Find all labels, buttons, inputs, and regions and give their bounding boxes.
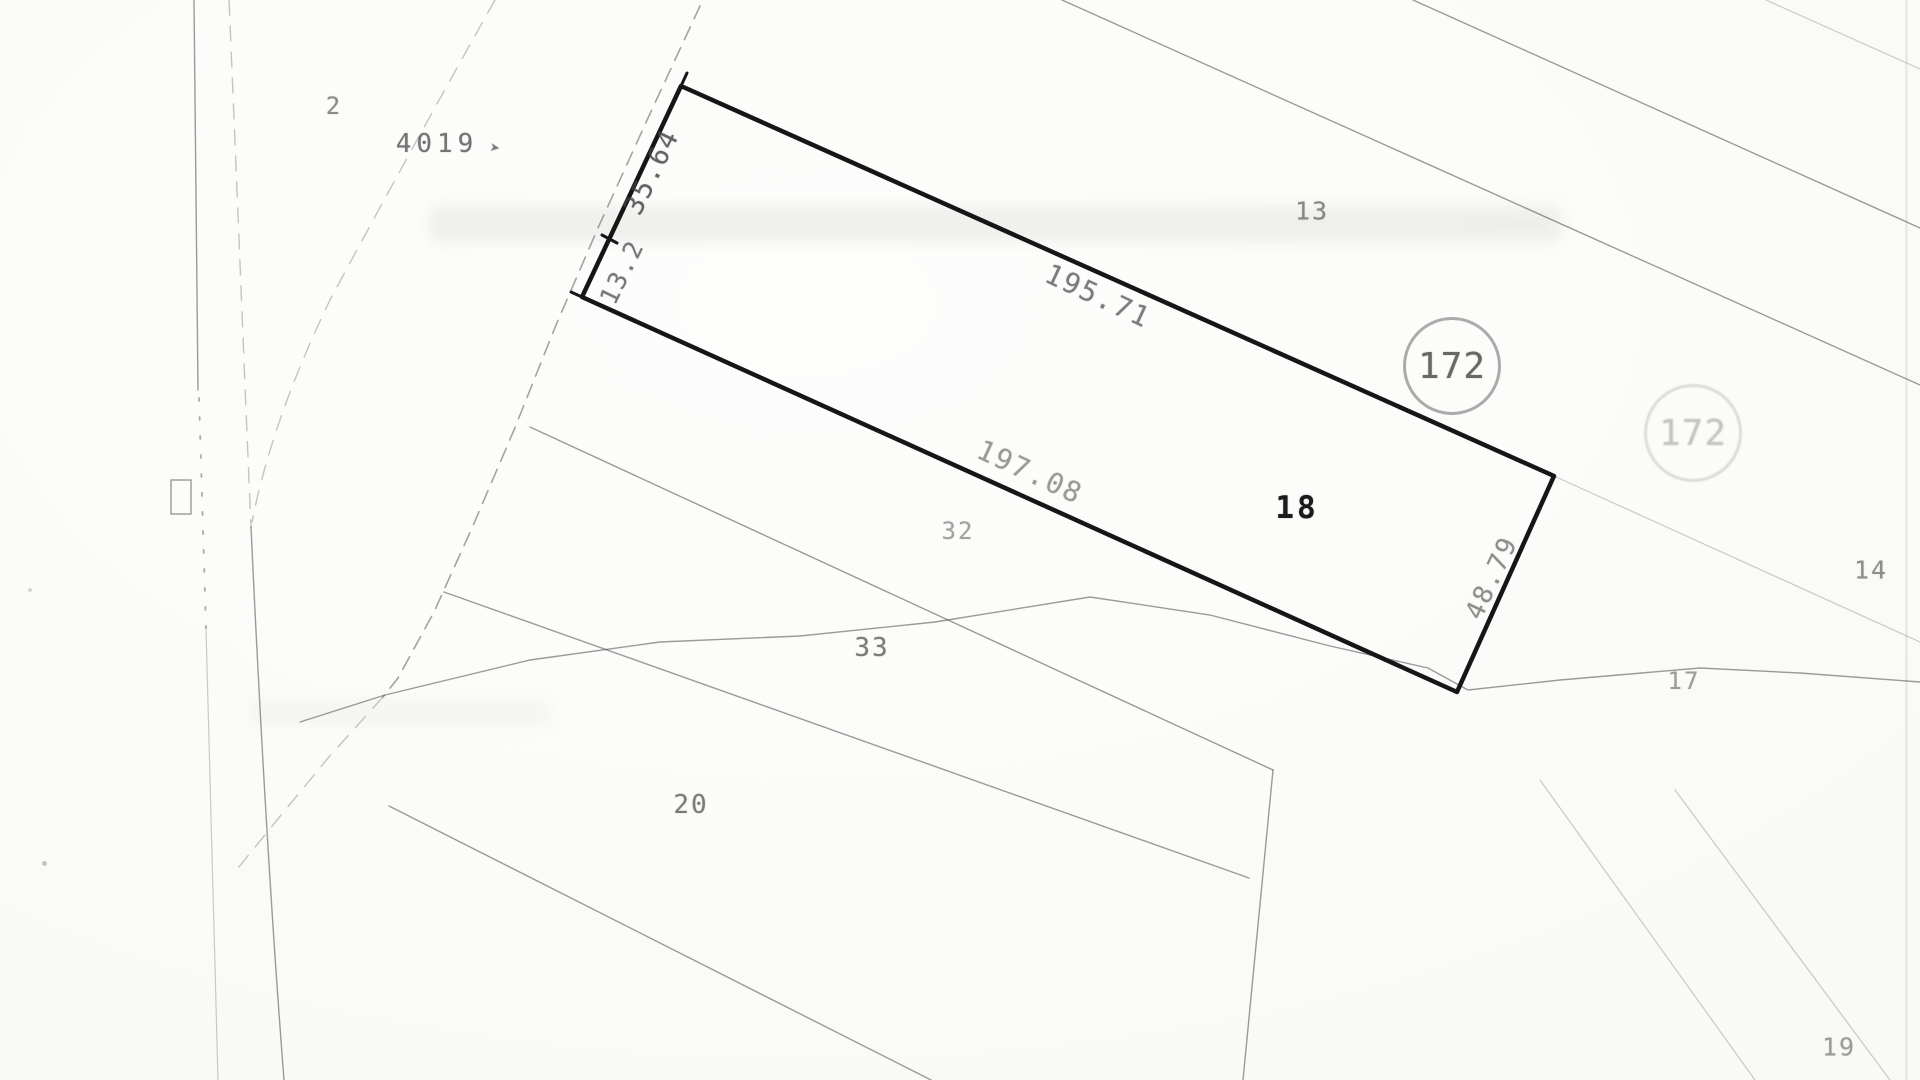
reference-circle-172-faint: 172 — [1644, 384, 1742, 482]
road-4019-west-edge — [252, 0, 495, 522]
strip-line-2 — [444, 592, 1249, 878]
parcel-label-13: 13 — [1295, 197, 1329, 226]
small-structure-box — [171, 480, 191, 514]
parcel-label-14: 14 — [1854, 556, 1888, 585]
road-4019-continuation — [238, 697, 383, 868]
stream-line — [300, 597, 1920, 722]
parcel-label-20: 20 — [673, 790, 708, 820]
field-strips-south — [389, 427, 1273, 1080]
parcel-label-32: 32 — [942, 517, 975, 545]
corner-overshoot-bottom — [571, 292, 582, 297]
reference-number-172-faint: 172 — [1659, 413, 1727, 454]
road-4019-east-edge — [383, 6, 700, 697]
left-road-boundaries — [171, 0, 284, 1080]
road-label-4019: 4019 — [396, 129, 479, 159]
parcel-label-18: 18 — [1275, 490, 1318, 526]
strip-line-ne-2 — [1413, 0, 1920, 228]
strip-line-ne-1 — [1062, 0, 1920, 385]
parcel-label-33: 33 — [854, 633, 889, 663]
strip-line-3 — [389, 806, 931, 1080]
strip-line-se-2 — [1675, 790, 1890, 1080]
road-edge-dashed-upper — [229, 0, 251, 527]
parcel-label-17: 17 — [1668, 667, 1701, 695]
left-boundary-lower — [206, 628, 218, 1080]
strip-line-se-1 — [1540, 780, 1755, 1080]
strip-line-1 — [530, 427, 1273, 770]
cadastral-map-canvas: 35.64 13.2 195.71 197.08 48.79 2 4019 ➤ … — [0, 0, 1920, 1080]
strip-end-boundary — [1243, 770, 1273, 1080]
reference-circle-172-primary: 172 — [1403, 317, 1501, 415]
left-boundary-upper — [194, 0, 198, 390]
parcel-label-2: 2 — [326, 92, 342, 120]
strip-line-ne-3 — [1766, 0, 1920, 69]
parcel-label-19: 19 — [1822, 1033, 1856, 1062]
reference-number-172: 172 — [1418, 346, 1486, 387]
corner-overshoot-top — [681, 73, 687, 86]
left-boundary-dotted — [199, 398, 206, 628]
road-edge-lower — [251, 527, 284, 1080]
